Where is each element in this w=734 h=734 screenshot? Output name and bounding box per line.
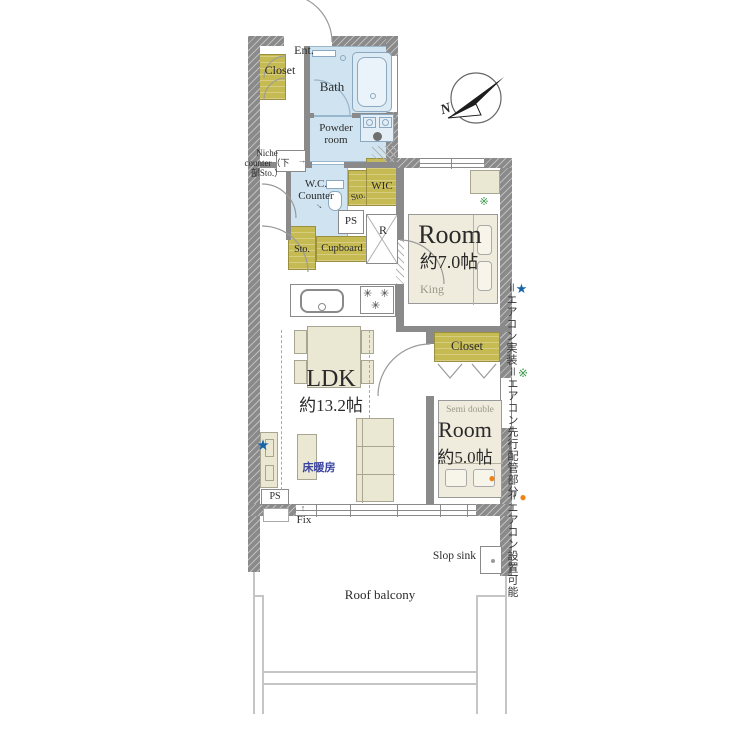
balcony-rail-left-inner xyxy=(254,596,263,714)
legend-aircon-installed: ★＝エアコン実装 xyxy=(509,282,529,366)
closet-fold-doors xyxy=(438,364,496,378)
legend-aircon-installed-text: ＝エアコン実装 xyxy=(505,282,517,366)
powder-room-label: Powder room xyxy=(308,122,364,147)
legend-komejirushi-icon: ※ xyxy=(517,366,529,496)
aircon-possible-marker: ● xyxy=(484,472,500,485)
room5-bed-label: Semi double xyxy=(440,405,500,416)
room5-size-label: 約5.0帖 xyxy=(426,448,504,467)
legend-circle-icon: ● xyxy=(517,490,529,596)
bedroom-closet-label: Closet xyxy=(434,339,500,353)
bath-label: Bath xyxy=(310,80,354,95)
plan-lines-overlay xyxy=(0,0,734,734)
roof-balcony-label: Roof balcony xyxy=(326,588,434,603)
floor-plan: ✳ ✳ ✳ xyxy=(0,0,734,734)
entrance-closet-door-arc xyxy=(264,78,286,100)
cupboard-label: Cupboard xyxy=(314,243,370,255)
legend-aircon-possible-text: ＝エアコン設置可能 xyxy=(506,490,518,598)
ldk-size-label: 約13.2帖 xyxy=(286,396,376,415)
legend-star-icon: ★ xyxy=(516,282,529,364)
fix-label: Fix xyxy=(288,514,320,526)
refrigerator-label: R xyxy=(374,224,392,237)
wic-label: WIC xyxy=(366,180,398,192)
fix-arrow-icon: ↑ xyxy=(296,503,310,513)
entrance-closet-label: Closet xyxy=(256,64,304,77)
niche-counter-arrow-icon: → xyxy=(296,155,308,165)
balcony-rail-right-inner xyxy=(477,596,506,714)
room5-door-arc xyxy=(378,344,430,396)
aircon-piping-marker: ※ xyxy=(476,196,492,208)
legend-aircon-piping: ※＝エアコン先行配管部分 xyxy=(509,366,529,498)
legend-aircon-possible: ●＝エアコン設置可能 xyxy=(509,490,529,598)
niche-counter-label: Niche counter（下部Sto.） xyxy=(242,148,292,178)
sto-lower-label: Sto. xyxy=(287,244,317,255)
aircon-installed-marker: ★ xyxy=(254,438,272,455)
room5-label: Room xyxy=(430,418,500,443)
room7-label: Room xyxy=(406,220,494,249)
ps-lower-label: PS xyxy=(261,491,289,502)
slop-sink-label: Slop sink xyxy=(402,550,476,563)
compass xyxy=(444,68,512,130)
ent-label: Ent. xyxy=(286,44,322,57)
ps-upper-label: PS xyxy=(338,215,364,227)
room7-size-label: 約7.0帖 xyxy=(402,252,496,272)
floor-heating-label: 床暖房 xyxy=(294,462,344,474)
entrance-door-arc xyxy=(284,0,332,42)
legend-aircon-piping-text: ＝エアコン先行配管部分 xyxy=(506,366,518,498)
room7-bed-label: King xyxy=(412,283,452,296)
ldk-label: LDK xyxy=(298,366,364,393)
